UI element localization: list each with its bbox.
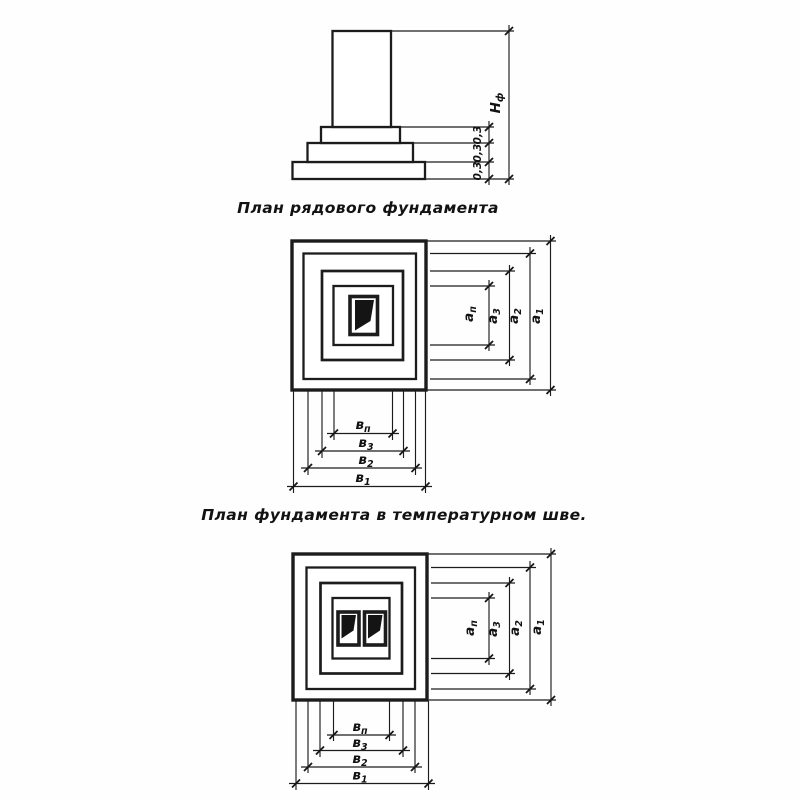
foundation-step-top <box>321 127 400 143</box>
plan-joint-dim-a-3: а3 <box>485 621 503 637</box>
plan-row-view: ап а3 а2 а1 в <box>287 235 556 493</box>
dim-sub: 3 <box>492 621 503 628</box>
plan-row-dim-a-p: ап <box>461 306 479 322</box>
step-height-dim-3: 0,3 <box>472 162 484 181</box>
dim-sub: 1 <box>535 308 546 315</box>
plan-joint-view: ап а3 а2 а1 в <box>289 548 556 790</box>
dim-sub: п <box>361 726 368 737</box>
drawing-page: 0,3 0,3 0,3 Нф План рядового фундамента <box>0 0 800 800</box>
dim-base: а <box>461 313 477 322</box>
plan-row-caption: План рядового фундамента <box>237 199 499 217</box>
dim-sub: п <box>468 306 479 313</box>
dim-sub: 3 <box>367 442 374 453</box>
plan-joint-dim-a-1: а1 <box>529 619 547 635</box>
plan-row-dim-a-3: а3 <box>485 308 503 324</box>
step-height-dim-1: 0,3 <box>472 126 484 145</box>
dim-sub: 2 <box>514 620 525 627</box>
plan-joint-dim-a-p: ап <box>462 620 480 636</box>
dim-base: а <box>528 315 544 324</box>
foundation-height-base: Н <box>488 101 504 113</box>
dim-sub: 2 <box>361 758 368 769</box>
dim-sub: 2 <box>513 308 524 315</box>
dim-sub: 3 <box>361 742 368 753</box>
dim-sub: 1 <box>536 619 547 626</box>
foundation-height-dim: Нф <box>488 93 506 114</box>
foundation-drawing-svg: 0,3 0,3 0,3 Нф План рядового фундамента <box>0 0 800 800</box>
dim-sub: 3 <box>492 308 503 315</box>
elevation-view: 0,3 0,3 0,3 Нф <box>293 25 515 185</box>
dim-sub: п <box>469 620 480 627</box>
dim-sub: 1 <box>361 775 368 786</box>
column <box>333 31 392 127</box>
plan-row-dim-v-1: в1 <box>355 470 370 488</box>
plan-row-dim-a-1: а1 <box>528 308 546 324</box>
plan-joint-dim-v-2: в2 <box>352 751 368 769</box>
foundation-height-sub: ф <box>495 93 506 102</box>
plan-joint-caption: План фундамента в температурном шве. <box>201 506 587 524</box>
plan-joint-dim-v-1: в1 <box>352 768 367 786</box>
dim-sub: 2 <box>367 459 374 470</box>
plan-row-dim-v-3: в3 <box>358 435 374 453</box>
dim-base: а <box>507 627 523 636</box>
plan-row-dim-v-2: в2 <box>358 452 374 470</box>
dim-base: а <box>485 628 501 637</box>
plan-row-dim-v-p: вп <box>355 417 371 435</box>
dim-sub: 1 <box>364 477 371 488</box>
plan-row-dim-a-2: а2 <box>506 308 524 324</box>
foundation-step-bottom <box>293 162 426 179</box>
dim-base: а <box>485 315 501 324</box>
dim-base: а <box>462 627 478 636</box>
step-height-dim-2: 0,3 <box>472 144 484 163</box>
dim-base: а <box>506 315 522 324</box>
dim-base: а <box>529 626 545 635</box>
foundation-step-middle <box>308 143 414 162</box>
dim-sub: п <box>364 424 371 435</box>
